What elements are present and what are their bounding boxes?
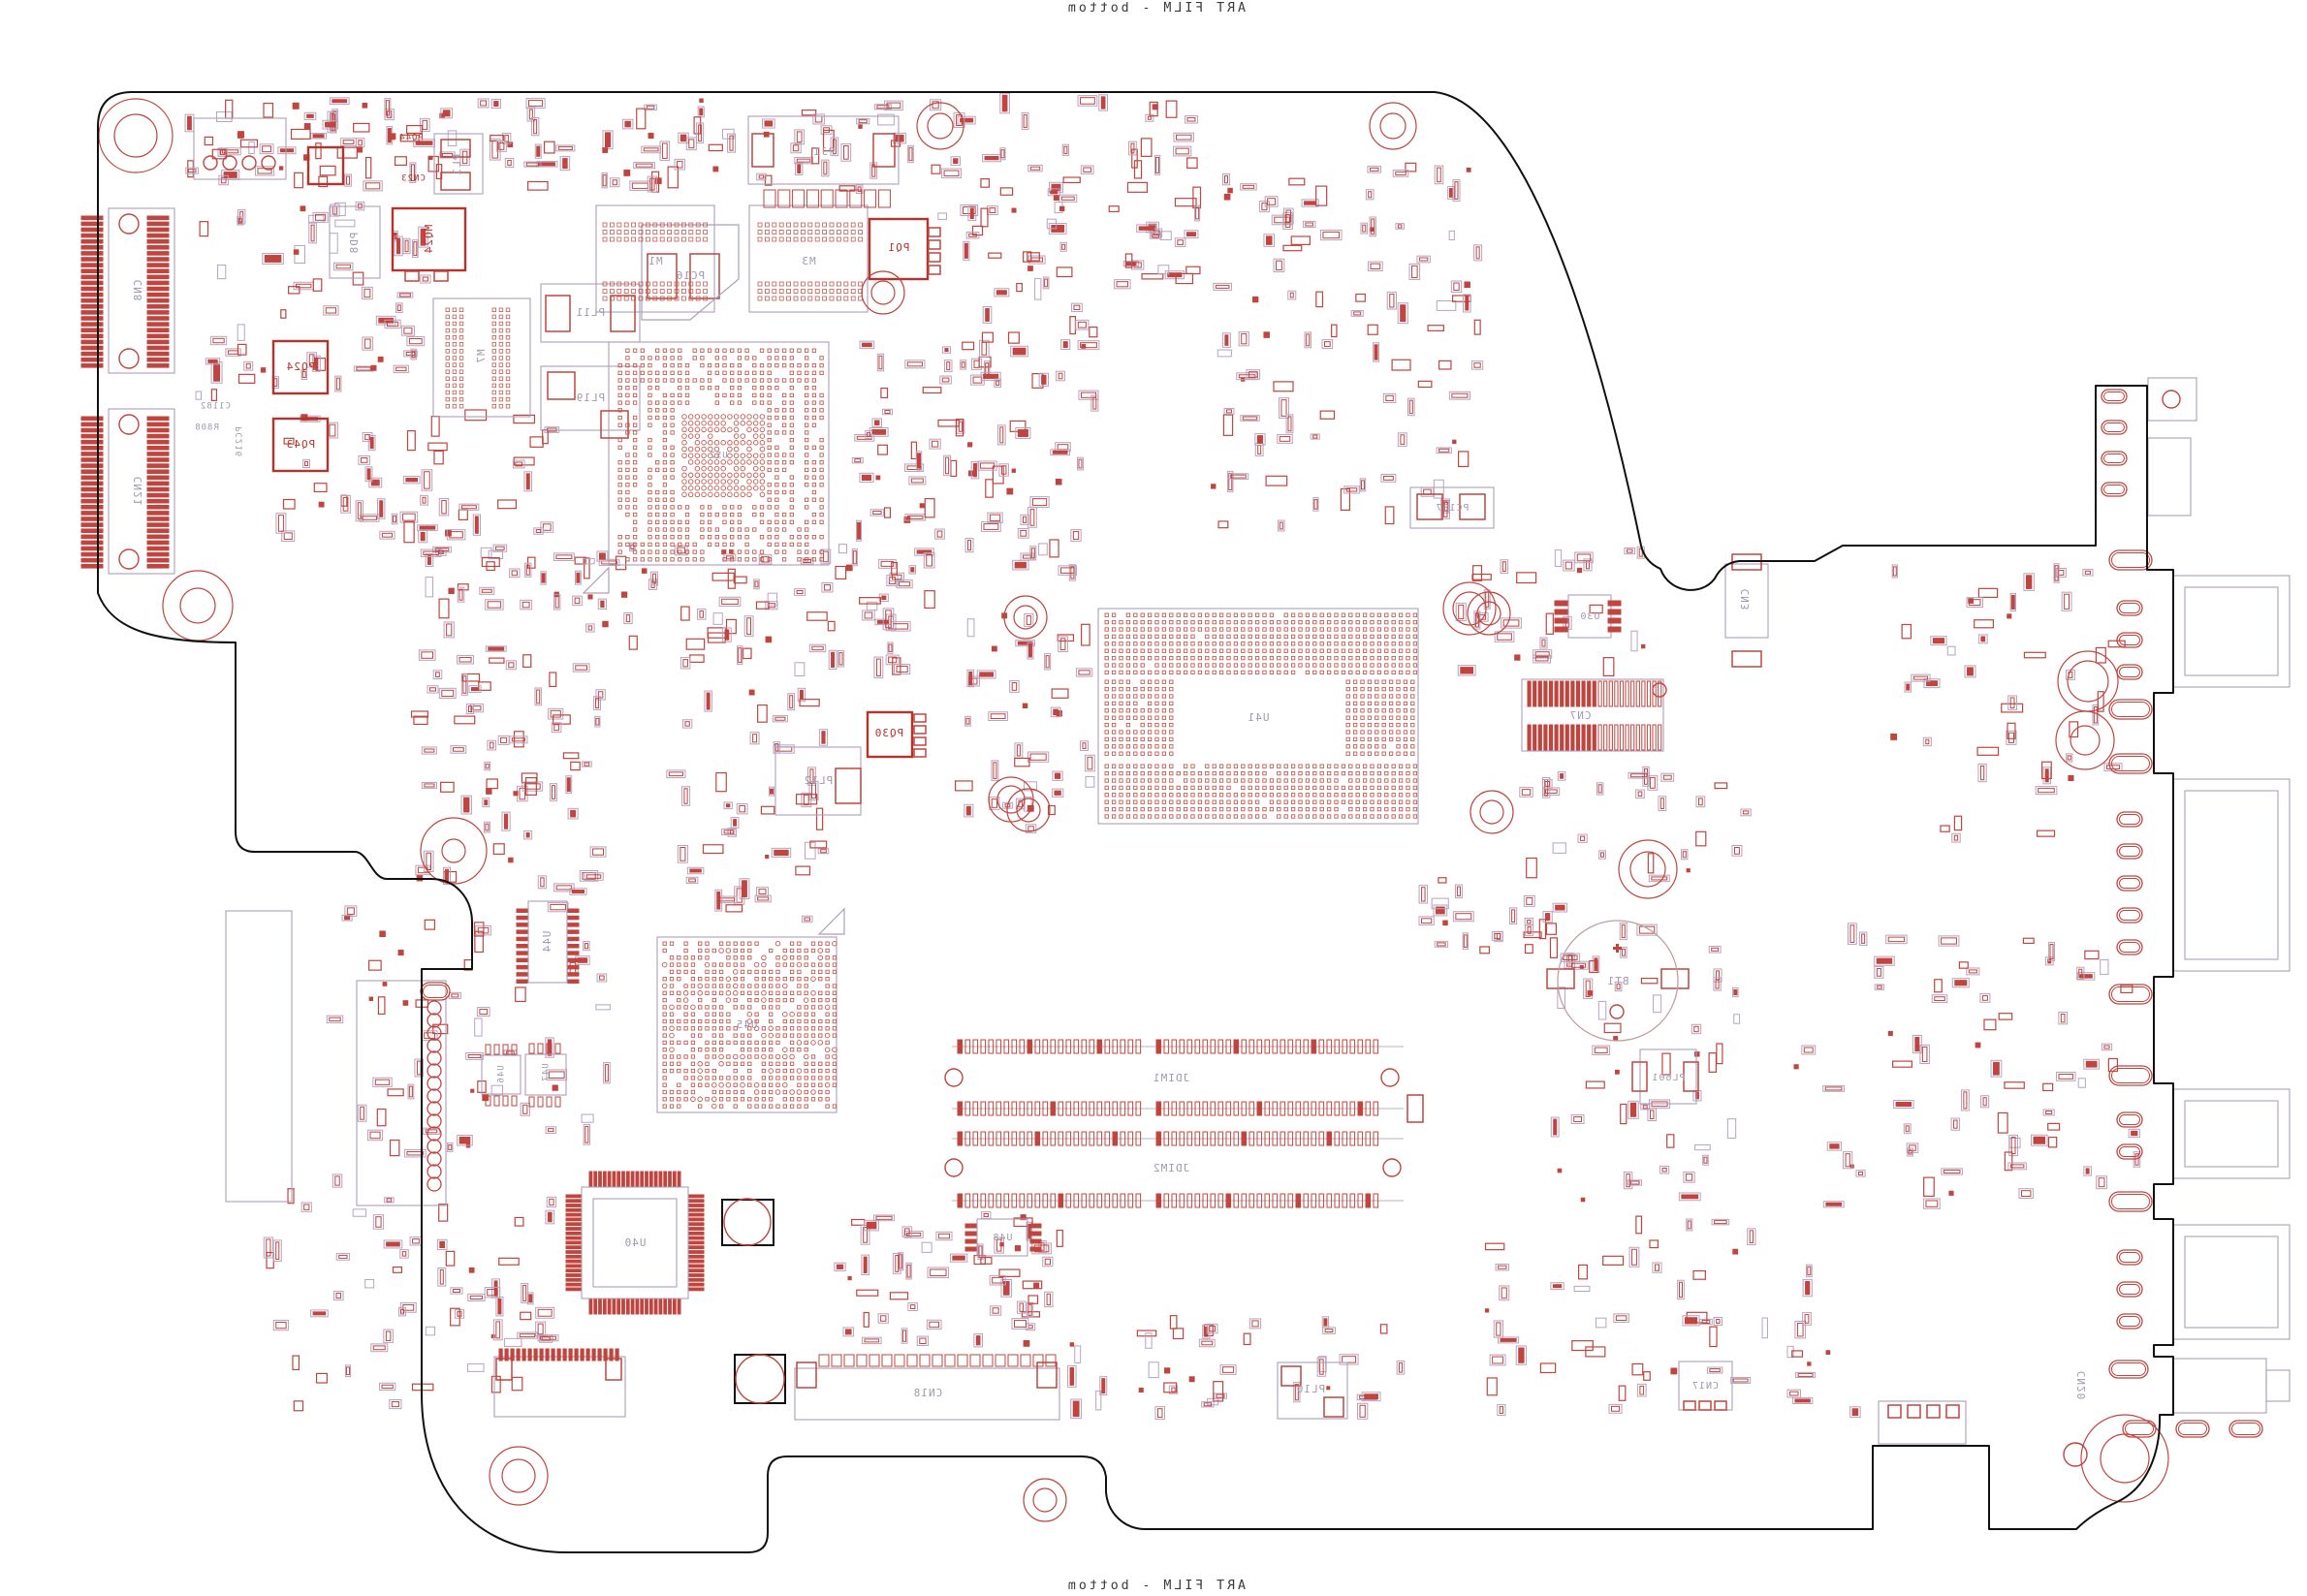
pin [819,1355,829,1366]
pad-circle [736,1355,784,1403]
pin [81,323,103,327]
pin [568,930,579,934]
component-outline [611,296,635,331]
pin [1608,601,1621,606]
pin [147,552,169,556]
through-hole-pin [427,1177,441,1191]
refdes-label: CN3 [1739,589,1752,611]
pin [1544,681,1547,706]
pin [1544,725,1547,750]
pad-circle [242,156,256,170]
pin [147,447,169,451]
dimm-pin [1327,1132,1332,1145]
refdes-label: PL10 [1296,1383,1326,1395]
pin [566,1236,581,1239]
mounting-hole [99,99,173,172]
mounting-hole-inner [997,786,1025,813]
pin [147,340,169,344]
cluster [1485,1216,1860,1417]
dimm-pin [1035,1132,1040,1145]
component-outline [873,134,895,167]
pin [568,973,579,977]
component-outline [2185,791,2278,959]
pin [563,1349,566,1361]
pin [689,1208,704,1211]
refdes-label: C1182 [200,402,231,412]
pin [512,1096,517,1106]
pin [147,358,169,361]
cluster [835,1212,1062,1347]
pin [147,234,169,237]
drawing-title-top: ART FILM - bottom [1065,1,1246,16]
dimm-pin [1296,1194,1301,1207]
pin [689,1274,704,1277]
component-outline [914,726,926,734]
refdes-label: MQ24 [423,225,435,255]
pin [81,499,103,503]
pin [659,1172,662,1186]
pin [641,1299,644,1314]
pin [1620,725,1623,750]
refdes-label: PL601 [1651,1073,1685,1083]
cluster [276,410,559,543]
pin [566,1288,581,1291]
pin [81,547,103,550]
pin [1533,725,1536,750]
cluster [264,1174,558,1411]
pin [538,1044,543,1053]
pin [649,1172,652,1186]
through-hole-pin [427,1001,441,1015]
ref-labels: PJ1M1M3M7PL1PQ44CN23PD8MQ24PQ1PC16C1182R… [132,134,2088,1401]
pin [81,428,103,432]
pin [907,1355,917,1366]
component-outline [2173,779,2290,971]
refdes-label: CN8 [132,280,144,302]
pin [147,428,169,432]
pin [1555,618,1567,623]
pin-combs [81,190,1661,1366]
pin [1636,681,1639,706]
pin [147,269,169,273]
through-hole-pin [427,1089,441,1103]
pin [821,190,833,207]
pin [81,329,103,332]
pin [1631,725,1634,750]
refdes-label: CN17 [1691,1381,1719,1392]
pin [81,216,103,220]
pin [517,909,527,913]
mounting-hole [862,271,904,314]
pin [965,1224,976,1228]
component-outline [1732,651,1761,667]
refdes-label: JDIM1 [1153,1072,1189,1084]
pin [147,535,169,539]
oval-pad-inner [2179,1424,2207,1435]
pin [631,1172,634,1186]
pin [81,447,103,451]
pin [617,1172,620,1186]
pad-circle [223,156,237,170]
pin [1565,725,1568,750]
component-outline [929,228,940,236]
pin [641,1172,644,1186]
pin [1008,1355,1018,1366]
pin [965,1232,976,1236]
pad-circle [119,214,139,234]
refdes-label: PQ44 [398,134,424,143]
pin [147,476,169,480]
pad-circle [119,349,139,368]
pin [81,523,103,527]
dimm-pin [1312,1040,1316,1053]
pin [654,1299,657,1314]
pin [81,334,103,338]
pin [1582,725,1585,750]
pin [147,281,169,285]
pin [566,1278,581,1281]
component-outline [606,1359,621,1380]
pin [81,364,103,368]
pad-circle [724,1199,771,1245]
pin [1615,681,1618,706]
refdes-label: PL1 [451,154,463,176]
dimm-pin [1242,1132,1247,1145]
pin [1538,725,1541,750]
pin [568,923,579,927]
component-polygon [584,568,609,593]
pin [517,916,527,920]
oval-pad-inner [2232,1424,2260,1435]
pin [793,190,805,207]
oval-pad-inner [2120,815,2140,825]
cluster [1520,767,1751,881]
oval-pad-inner [2104,485,2125,494]
pin [494,1045,499,1054]
component-clusters [185,93,2140,1419]
pin [81,298,103,302]
pin [147,323,169,327]
pin [689,1278,704,1281]
pin [517,937,527,941]
refdes-label: CN18 [913,1387,943,1399]
pin [970,1355,980,1366]
pin [147,287,169,291]
pin [81,264,103,267]
pin [147,558,169,562]
board-outline-path [98,92,2173,1552]
mounting-hole-inner [114,114,157,157]
refdes-label: PC16 [676,269,706,282]
oval-pad-inner [2120,911,2140,921]
pin [1030,1239,1041,1243]
pin [81,541,103,545]
pin [604,1349,607,1361]
pin [1642,725,1645,750]
dimm-pin [1113,1132,1118,1145]
pin [689,1213,704,1216]
pin [673,1172,676,1186]
pin [1626,681,1628,706]
pin [1561,681,1564,706]
mounting-hole-inner [2068,661,2108,702]
pin [81,340,103,344]
mounting-hole-inner [180,588,215,623]
pin [689,1260,704,1263]
pin [81,287,103,291]
pin [689,1223,704,1226]
pin [1549,681,1552,706]
refdes-label: CN7 [1569,709,1592,722]
pin [844,1355,854,1366]
pin [689,1269,704,1272]
pin [1588,725,1591,750]
pin [517,965,527,969]
pin [689,1241,704,1244]
pin [568,916,579,920]
pin [517,923,527,927]
pin [528,1349,531,1361]
component-outline [1699,1401,1711,1410]
component-outline [1547,969,1574,988]
refdes-label: PQ43 [286,438,316,451]
component-outline [2173,1359,2266,1413]
pin [1609,681,1612,706]
dimm-pin [958,1132,963,1145]
component-outline [548,372,575,399]
pin [592,1349,595,1361]
pin [566,1260,581,1263]
oval-pad-inner [2120,1253,2140,1263]
pin [517,930,527,934]
pin [673,1299,676,1314]
pin [689,1246,704,1249]
through-hole-pin [427,1014,441,1027]
refdes-label: BT1 [1607,975,1629,987]
pin [589,1172,592,1186]
pin [547,1097,552,1107]
pin [557,1349,560,1361]
pin [494,1096,499,1106]
pin [1608,610,1621,614]
pin [608,1299,611,1314]
component-outline [1927,1405,1940,1418]
component-outline [1684,1401,1695,1410]
pin [81,269,103,273]
pin [517,958,527,962]
pin [613,1172,616,1186]
through-hole-pin [427,1039,441,1052]
dimm-pin [958,1040,963,1053]
pin [566,1283,581,1286]
pin [689,1200,704,1203]
pin [581,1349,584,1361]
pin [617,1299,620,1314]
pin [1659,681,1661,706]
mounting-hole-inner [2070,726,2100,755]
pin [81,535,103,539]
component-outline [1946,1405,1959,1418]
pin [529,1044,534,1053]
mounting-hole [163,571,233,641]
pin [81,358,103,361]
pin [81,464,103,468]
pin [81,458,103,462]
component-outline [914,749,926,757]
oval-pad-inner [2120,1317,2140,1327]
pin [1549,725,1552,750]
pin [81,239,103,243]
through-hole-pin [427,1165,441,1178]
pin [81,305,103,309]
pin [646,1299,648,1314]
pin [1021,1355,1030,1366]
pin [147,258,169,262]
oval-pad-inner [2112,703,2150,717]
refdes-label: PC187 [1435,503,1469,514]
pin [147,317,169,321]
pin [1608,618,1621,623]
pin [81,440,103,444]
pad-circle [1610,1005,1624,1018]
pin [505,1349,508,1361]
pin [895,1355,904,1366]
pin [836,190,847,207]
pin [608,1172,611,1186]
pad-circle [945,1159,963,1176]
oval-pad-inner [2120,604,2140,613]
pin [546,1349,549,1361]
refdes-label: U41 [1248,711,1270,724]
pin [586,1349,589,1361]
pin [81,487,103,491]
refdes-label: U30 [1579,611,1599,622]
mounting-hole-inner [1014,606,1037,629]
mounting-hole [917,103,964,149]
pin [610,1349,613,1361]
dimm-pin [1234,1040,1239,1053]
oval-pad-inner [2120,636,2140,645]
pin [147,298,169,302]
mounting-hole-inner [1453,592,1486,625]
component-outline [2173,1089,2290,1178]
component-outline [2185,1101,2278,1167]
pin [1555,610,1567,614]
pin [1659,725,1661,750]
pin [603,1299,606,1314]
through-hole-pin [427,1051,441,1065]
pin [599,1299,602,1314]
oval-pad-inner [2120,943,2140,953]
pin [659,1299,662,1314]
pin [594,1299,597,1314]
pin [594,1172,597,1186]
pin [147,523,169,527]
drawing-title-bottom: ART FILM - bottom [1065,1579,1246,1593]
pin [81,258,103,262]
cluster [1419,878,1575,968]
pin [566,1213,581,1216]
pin [147,493,169,497]
pin [616,1349,618,1361]
component-outline [2148,438,2191,516]
pin [81,246,103,250]
pin [945,1355,955,1366]
component-outline [405,271,419,281]
pin [689,1265,704,1267]
refdes-label: U40 [624,1236,647,1249]
pad-circle [1381,1069,1399,1086]
pin [81,275,103,279]
pin [81,512,103,516]
pin [1046,1355,1056,1366]
pin [566,1232,581,1235]
pin [566,1223,581,1226]
pin [568,952,579,955]
dimm-pin [1257,1102,1262,1115]
pin [566,1205,581,1207]
pin [669,1172,672,1186]
pin [1631,681,1634,706]
board-outline [98,92,2173,1552]
refdes-label: M3 [801,255,815,267]
pin [147,529,169,533]
through-hole-pin [427,1152,441,1166]
component-outline [601,411,628,438]
pin [1571,681,1574,706]
mounting-hole [490,1447,548,1505]
pin [147,264,169,267]
pin [869,1355,879,1366]
mounting-hole [1470,791,1513,833]
pin [622,1172,625,1186]
pin [689,1251,704,1254]
pin [147,541,169,545]
component-outline [2173,576,2290,687]
pin [622,1299,625,1314]
pin [147,311,169,315]
pin [517,980,527,984]
pin [983,1355,993,1366]
oval-pad-inner [2120,1115,2140,1125]
dimm-pin [1366,1194,1371,1207]
pin [1030,1247,1041,1251]
pad-circle [1653,683,1666,697]
pin [598,1349,601,1361]
dimm-pin [1156,1040,1161,1053]
cluster [667,688,829,922]
pin [81,482,103,485]
pin [540,1349,543,1361]
mounting-hole [2056,711,2114,769]
pin [81,234,103,237]
through-hole-pin [427,1064,441,1078]
pin [517,973,527,977]
pin [882,1355,892,1366]
pin [81,434,103,438]
pin [569,1349,572,1361]
pin [689,1236,704,1239]
pin [147,517,169,521]
pin [1647,681,1650,706]
refdes-label: CN23 [400,174,426,184]
pin [1528,725,1531,750]
oval-pad-inner [2120,668,2140,677]
pin [958,1355,967,1366]
pin [147,499,169,503]
mounting-hole-inner [928,113,953,139]
pin [689,1218,704,1221]
